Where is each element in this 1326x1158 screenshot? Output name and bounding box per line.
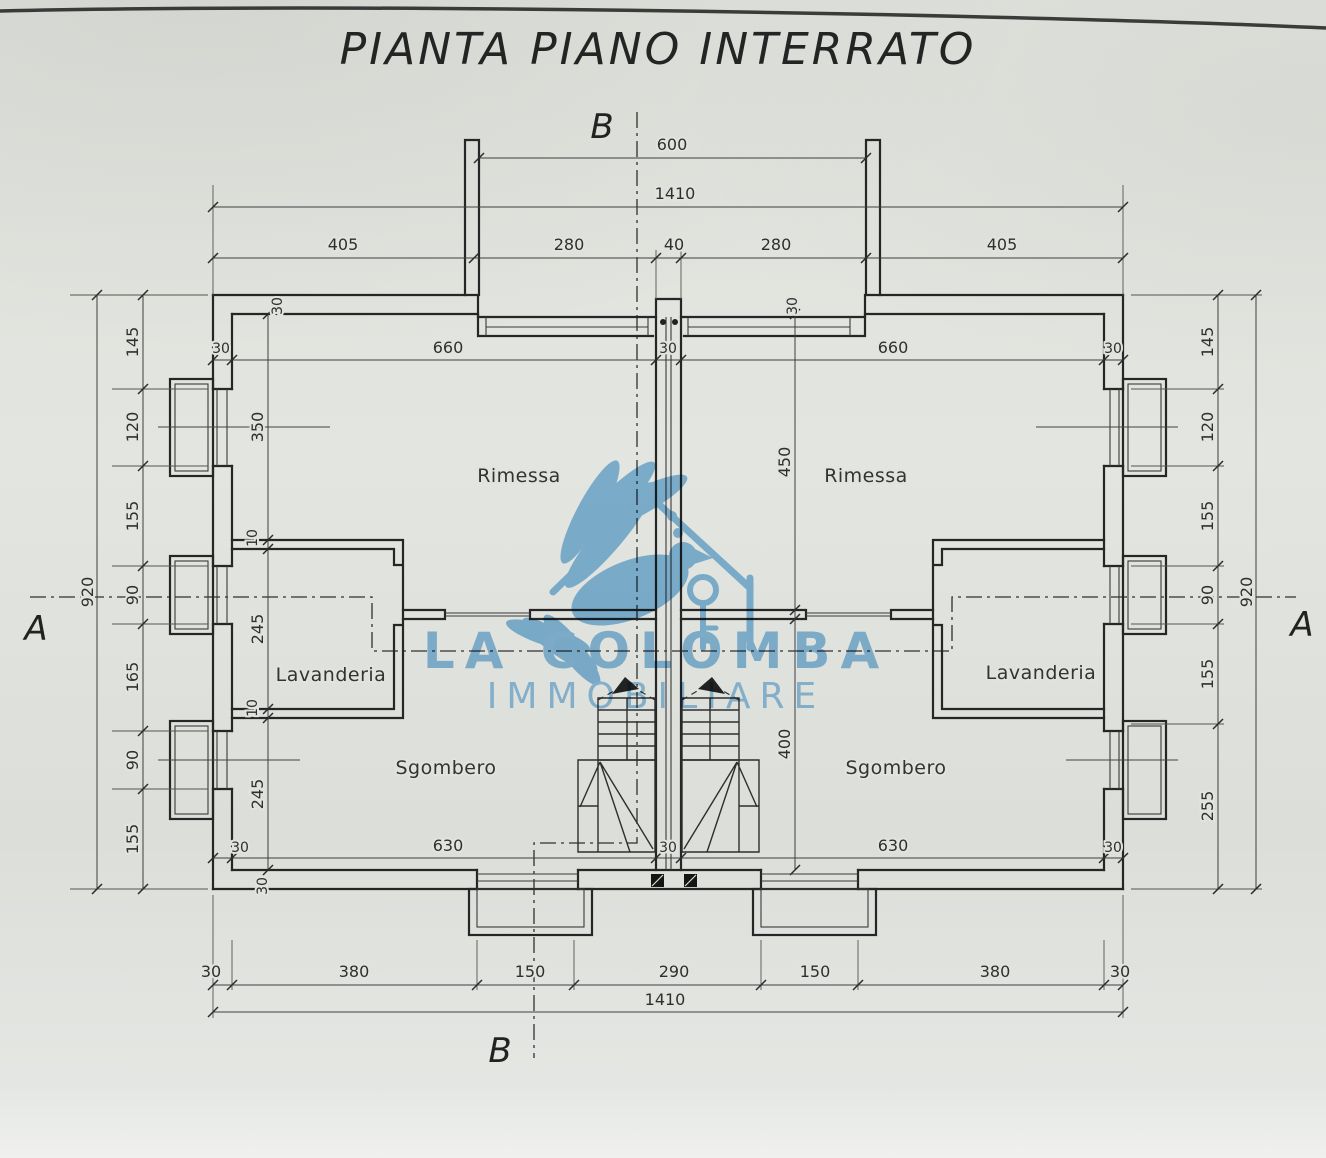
- dim-rimessa-right-depth: 450: [775, 447, 794, 478]
- dim-bottom-1: 380: [339, 962, 370, 981]
- room-label-sgombero-right: Sgombero: [845, 757, 946, 779]
- dim-left-0: 145: [123, 327, 142, 358]
- dim-center-wall-30: 30: [659, 341, 677, 357]
- dim-left-4: 165: [123, 662, 142, 693]
- dim-wall-30: 30: [231, 840, 249, 856]
- dim-rimessa-left-width: 660: [433, 338, 464, 357]
- section-marker-a-right: A: [1288, 605, 1313, 645]
- dim-top-row-4: 405: [987, 235, 1018, 254]
- dim-bottom-0: 30: [201, 962, 221, 981]
- dim-bottom-4: 150: [800, 962, 831, 981]
- room-label-sgombero-left: Sgombero: [395, 757, 496, 779]
- dim-wall-30: 30: [212, 341, 230, 357]
- dim-sgombero-right-depth: 400: [775, 729, 794, 760]
- dim-top-total: 1410: [655, 184, 696, 203]
- dim-wall-30: 30: [1104, 840, 1122, 856]
- brand-name: LA COLOMBA: [423, 622, 889, 680]
- section-marker-b-top: B: [590, 107, 613, 147]
- room-label-rimessa-left: Rimessa: [477, 465, 561, 487]
- dim-sgombero-left-height: 245: [248, 779, 267, 810]
- dim-right-3: 90: [1198, 585, 1217, 605]
- watermark-logo: LA COLOMBA IMMOBILIARE: [423, 453, 889, 717]
- dim-wall-30-rot: 30: [255, 877, 271, 895]
- section-marker-b-bottom: B: [488, 1031, 511, 1071]
- dim-right-2: 155: [1198, 501, 1217, 532]
- dim-center-wall-30: 30: [659, 840, 677, 856]
- dim-rimessa-left-depth: 350: [248, 412, 267, 443]
- dim-left-total: 920: [78, 577, 97, 608]
- section-marker-a-left: A: [22, 609, 47, 649]
- dim-jamb-10: 10: [245, 529, 261, 547]
- dim-bottom-total: 1410: [645, 990, 686, 1009]
- floor-plan-drawing: PIANTA PIANO INTERRATO B B A A: [0, 0, 1326, 1158]
- dim-sgombero-left-width: 630: [433, 836, 464, 855]
- dim-bottom-2: 150: [515, 962, 546, 981]
- dim-top-row-3: 280: [761, 235, 792, 254]
- dim-top-row-0: 405: [328, 235, 359, 254]
- dim-left-2: 155: [123, 501, 142, 532]
- dim-rimessa-right-width: 660: [878, 338, 909, 357]
- room-label-lavanderia-left: Lavanderia: [276, 664, 387, 686]
- dim-right-4: 155: [1198, 659, 1217, 690]
- dim-right-total: 920: [1237, 577, 1256, 608]
- dim-right-5: 255: [1198, 791, 1217, 822]
- dim-right-0: 145: [1198, 327, 1217, 358]
- dim-wall-30-rot: 30: [270, 297, 286, 315]
- dim-top-opening: 600: [657, 135, 688, 154]
- room-label-lavanderia-right: Lavanderia: [986, 662, 1097, 684]
- wall-dot-right: [672, 319, 678, 325]
- dim-left-3: 90: [123, 585, 142, 605]
- dim-jamb-10: 10: [245, 699, 261, 717]
- brand-subtitle: IMMOBILIARE: [487, 676, 825, 717]
- dim-right-1: 120: [1198, 412, 1217, 443]
- dim-top-row-1: 280: [554, 235, 585, 254]
- dim-top-row-2: 40: [664, 235, 684, 254]
- dim-lavanderia-left-height: 245: [248, 614, 267, 645]
- dim-wall-30-rot: 30: [785, 297, 801, 315]
- scanned-floor-plan-sheet: { "title": "PIANTA PIANO INTERRATO", "ma…: [0, 0, 1326, 1158]
- dim-bottom-5: 380: [980, 962, 1011, 981]
- dim-left-1: 120: [123, 412, 142, 443]
- dim-bottom-3: 290: [659, 962, 690, 981]
- dim-left-6: 155: [123, 824, 142, 855]
- dim-wall-30: 30: [1104, 341, 1122, 357]
- dim-bottom-6: 30: [1110, 962, 1130, 981]
- sheet-title: PIANTA PIANO INTERRATO: [340, 24, 977, 75]
- dim-left-5: 90: [123, 750, 142, 770]
- dim-sgombero-right-width: 630: [878, 836, 909, 855]
- wall-dot-left: [660, 319, 666, 325]
- room-label-rimessa-right: Rimessa: [824, 465, 908, 487]
